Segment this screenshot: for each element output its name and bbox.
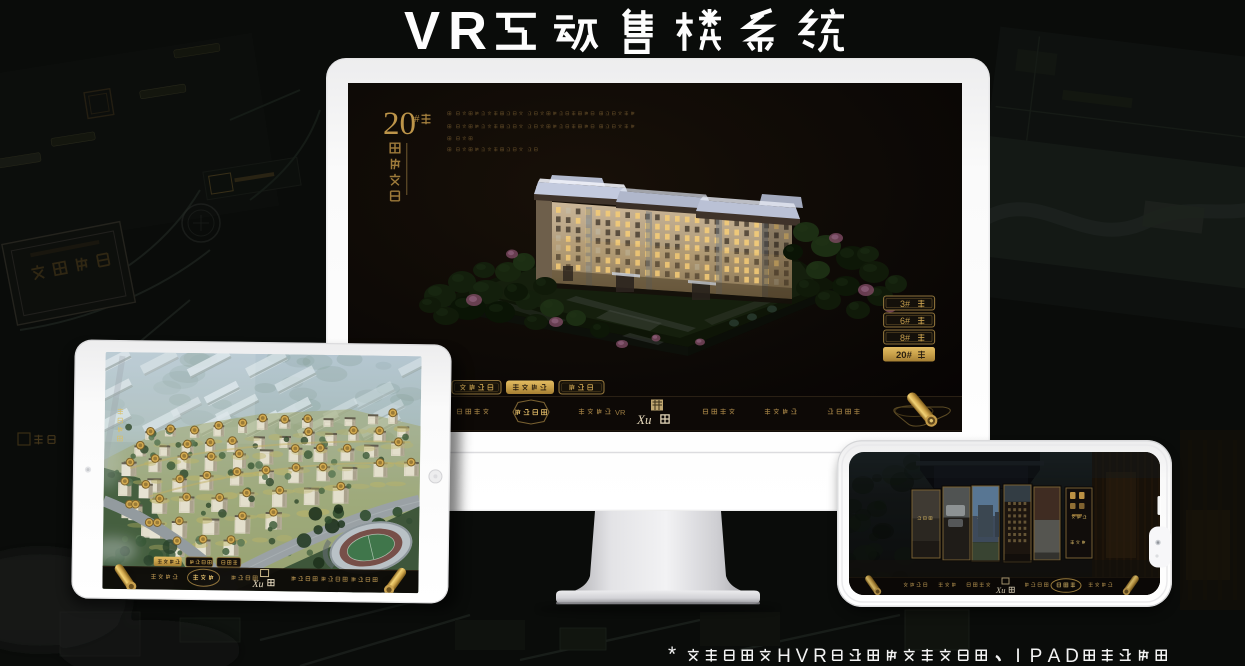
svg-text:H: H bbox=[777, 646, 791, 666]
svg-text:20#: 20# bbox=[896, 350, 913, 361]
svg-text:Xu: Xu bbox=[251, 579, 263, 590]
svg-text:P: P bbox=[1030, 646, 1043, 666]
svg-text:D: D bbox=[1065, 646, 1079, 666]
svg-text:20: 20 bbox=[383, 106, 416, 142]
svg-text:Xu: Xu bbox=[636, 412, 652, 427]
svg-text:I: I bbox=[1015, 646, 1020, 666]
svg-text:V: V bbox=[796, 646, 809, 666]
svg-text:#: # bbox=[414, 113, 420, 125]
svg-text:R: R bbox=[813, 646, 827, 666]
svg-text:3#: 3# bbox=[900, 299, 910, 309]
svg-text:8#: 8# bbox=[900, 333, 910, 343]
svg-text:A: A bbox=[1048, 646, 1061, 666]
svg-text:VR: VR bbox=[404, 1, 495, 61]
svg-text:6#: 6# bbox=[900, 316, 910, 326]
svg-text:VR: VR bbox=[615, 408, 626, 417]
svg-text:*: * bbox=[668, 643, 676, 666]
